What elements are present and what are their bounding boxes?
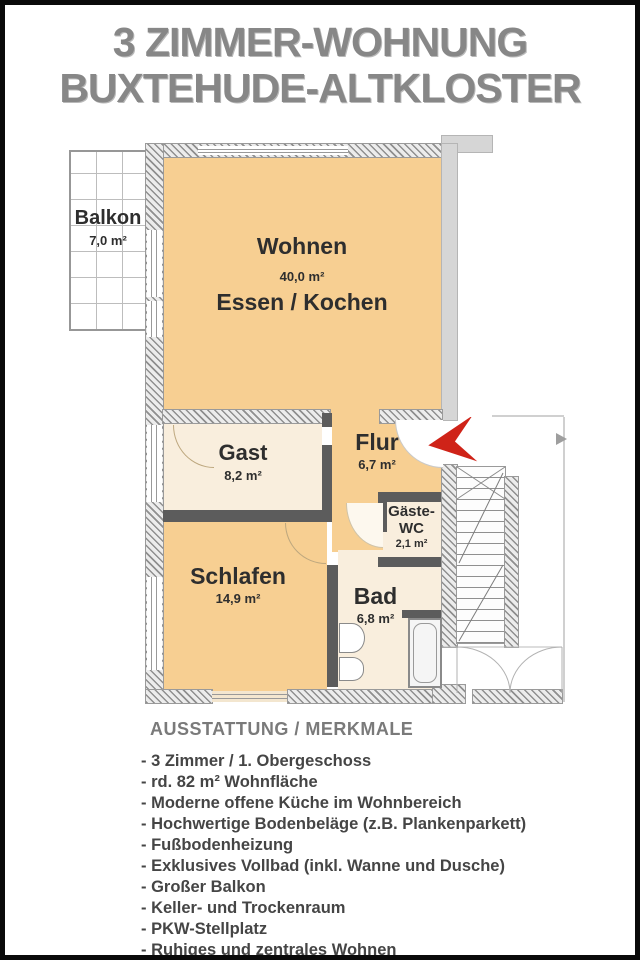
staircase (457, 467, 505, 643)
features-heading: AUSSTATTUNG / MERKMALE (150, 719, 413, 740)
wohnen-area: 40,0 m² (182, 267, 422, 287)
stair-wall-right (505, 477, 518, 647)
feature-item: - 3 Zimmer / 1. Obergeschoss (141, 751, 621, 772)
balkon-area: 7,0 m² (69, 231, 147, 251)
label-gast: Gast 8,2 m² (173, 440, 313, 486)
wall-gast-right (322, 445, 332, 511)
wc-name-line1: Gäste- (382, 503, 441, 520)
balkon-name: Balkon (69, 205, 147, 231)
gast-area: 8,2 m² (173, 466, 313, 486)
label-gaeste-wc: Gäste- WC 2,1 m² (382, 503, 441, 551)
direction-pointer-icon (556, 433, 567, 445)
wall-bottom-3 (473, 690, 562, 703)
feature-item: - Ruhiges und zentrales Wohnen (141, 940, 621, 960)
label-wohnen: Wohnen 40,0 m² Essen / Kochen (182, 233, 422, 315)
gast-name: Gast (173, 440, 313, 466)
wall-bottom-2 (288, 690, 442, 703)
wc-name-line2: WC (382, 520, 441, 537)
feature-item: - Großer Balkon (141, 877, 621, 898)
wc-area: 2,1 m² (382, 537, 441, 551)
label-bad: Bad 6,8 m² (338, 583, 413, 629)
label-schlafen: Schlafen 14,9 m² (163, 563, 313, 609)
bathtub-inner (413, 623, 437, 683)
schlafen-name: Schlafen (163, 563, 313, 589)
feature-item: - Keller- und Trockenraum (141, 898, 621, 919)
wall-wohnen-gast (163, 410, 330, 423)
wohnen-name: Wohnen (182, 233, 422, 259)
features-list: - 3 Zimmer / 1. Obergeschoss - rd. 82 m²… (141, 751, 621, 960)
bad-name: Bad (338, 583, 413, 609)
feature-item: - Moderne offene Küche im Wohnbereich (141, 793, 621, 814)
schlafen-area: 14,9 m² (163, 589, 313, 609)
bathtub (408, 618, 442, 688)
window-top (198, 146, 348, 155)
bad-area: 6,8 m² (338, 609, 413, 629)
window-left-2 (147, 301, 162, 337)
label-flur: Flur 6,7 m² (337, 429, 417, 475)
wall-bottom-1 (146, 690, 212, 703)
window-left-3 (147, 425, 162, 502)
window-left-4 (147, 577, 162, 670)
wall-gast-bottom (163, 510, 332, 522)
wall-wc-bottom (378, 557, 442, 567)
wall-wc-top (378, 492, 442, 502)
wohnen-subtitle: Essen / Kochen (182, 289, 422, 315)
feature-item: - PKW-Stellplatz (141, 919, 621, 940)
lower-door-arc-right (510, 647, 562, 693)
flur-name: Flur (337, 429, 417, 455)
wall-schlafen-bad (327, 565, 338, 687)
flyer-page: 3 ZIMMER-WOHNUNG BUXTEHUDE-ALTKLOSTER (0, 0, 640, 960)
feature-item: - Hochwertige Bodenbeläge (z.B. Plankenp… (141, 814, 621, 835)
wall-right-wohnen (442, 144, 457, 420)
stair-wall-left (442, 465, 457, 647)
window-bottom (212, 691, 288, 702)
flur-area: 6,7 m² (337, 455, 417, 475)
label-balkon: Balkon 7,0 m² (69, 205, 147, 251)
wall-gast-right-nib (322, 413, 332, 427)
toilet (339, 657, 364, 681)
feature-item: - Fußbodenheizung (141, 835, 621, 856)
feature-item: - Exklusives Vollbad (inkl. Wanne und Du… (141, 856, 621, 877)
window-left-1 (147, 230, 162, 297)
feature-item: - rd. 82 m² Wohnfläche (141, 772, 621, 793)
